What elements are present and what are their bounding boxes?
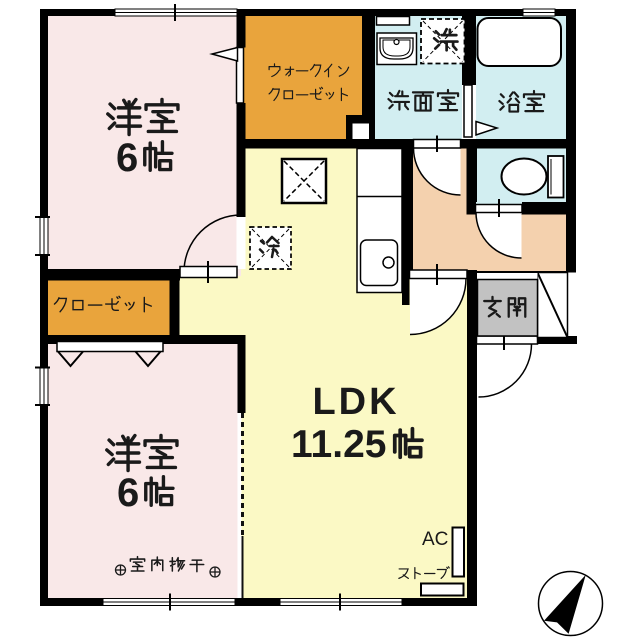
svg-text:11.25: 11.25 [291, 423, 386, 466]
svg-text:6: 6 [116, 136, 138, 180]
svg-text:AC: AC [422, 529, 448, 550]
svg-text:LDK: LDK [312, 381, 399, 423]
svg-text:6: 6 [117, 471, 139, 515]
